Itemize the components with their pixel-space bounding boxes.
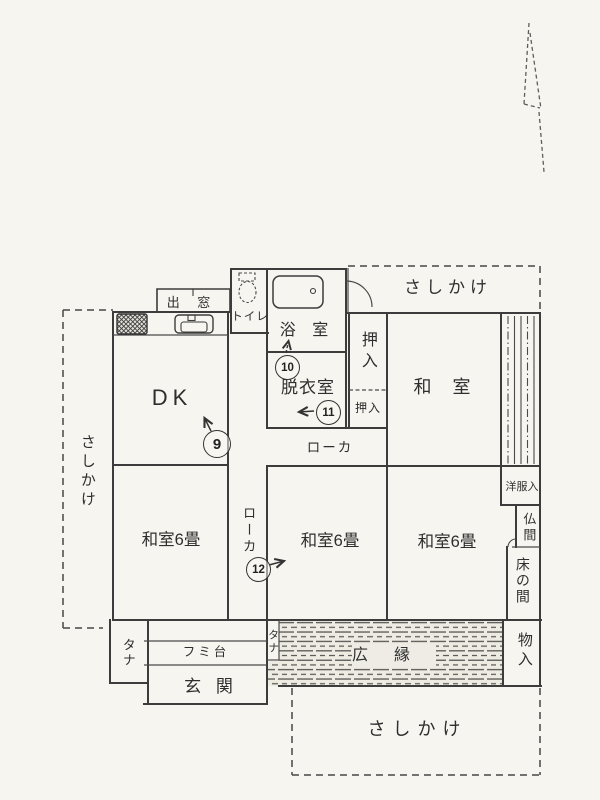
stove-icon [117,314,147,334]
dressing-room-label: 脱衣室 [279,378,337,397]
japanese-room6-right-label: 和室6畳 [413,533,481,552]
veranda-label: 広縁 [352,645,436,667]
paper-fold-line [524,23,544,172]
marker-10: 10 [275,355,300,380]
closet-lower-label: 押入 [352,401,384,415]
sashikake-top-label: さしかけ [392,277,504,299]
marker-9: 9 [203,430,231,458]
japanese-room6-middle-label: 和室6畳 [296,532,364,551]
bay-window-label: 出 窓 [162,295,222,310]
butsuma-label: 仏間 [521,509,536,547]
clothes-closet-label: 洋服入 [504,481,540,494]
marker-11: 11 [316,400,341,425]
butsuma-door-arc [508,539,516,547]
shelf-left-label: タナ [119,632,137,674]
entrance-label: 玄 関 [178,677,244,696]
tokonoma-label: 床の間 [513,552,532,610]
dk-label: DK [146,385,198,411]
marker-12-arrow [269,561,284,565]
floor-plan-page: さしかけ さしかけ さしかけ 出 窓 トイレ 浴 室 脱衣室 押入 押入 和 室… [0,0,600,800]
marker-9-arrow [205,418,212,431]
floor-plan-drawing [0,0,600,800]
sink-icon [175,315,213,333]
toilet-icon [239,273,256,303]
japanese-room6-left-label: 和室6畳 [137,531,205,550]
storage-label: 物入 [515,629,533,673]
shelf-right-label: タナ [265,625,279,659]
sashikake-bottom-label: さしかけ [345,717,490,741]
door-swing-arc [346,281,372,307]
closet-upper-label: 押入 [357,328,376,376]
bathroom-label: 浴 室 [276,322,338,341]
sashikake-left-label: さしかけ [76,424,98,519]
bathtub-icon [273,276,323,308]
corridor-horizontal-label: ローカ [306,440,354,456]
sashikake-dashed-outlines [63,266,540,775]
corridor-vertical-label: ローカ [239,507,256,555]
marker-11-arrow [299,411,314,412]
toilet-label: トイレ [230,310,270,324]
japanese-room-ne-label: 和 室 [414,377,478,398]
marker-12: 12 [246,557,271,582]
step-platform-label: フミ台 [176,645,236,660]
engawa-strip-lines [508,316,534,464]
